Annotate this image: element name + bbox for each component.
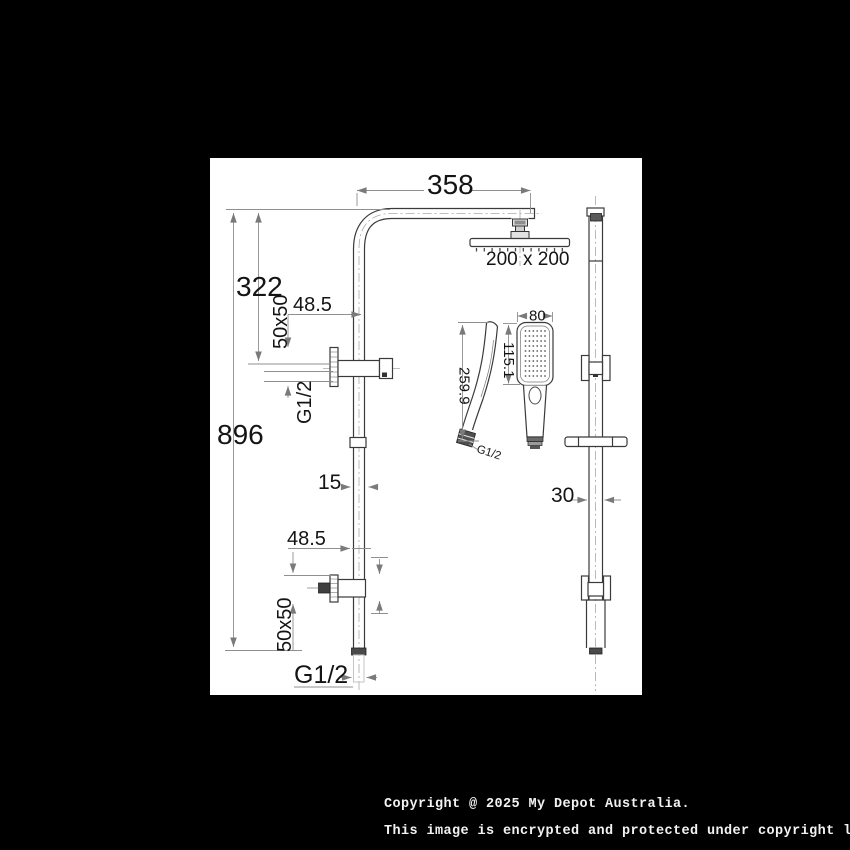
main-column-pipe [354, 209, 535, 649]
dim-head-size: 200 x 200 [486, 249, 569, 270]
dim-lower-offset: 48.5 [287, 528, 326, 550]
head-connector-base [511, 232, 529, 240]
pipe-union-nut [350, 438, 366, 448]
dim-hand-shower-length: 259.9 [456, 367, 473, 405]
copyright-protection-line: This image is encrypted and protected un… [384, 824, 850, 839]
dim-arm-length: 358 [427, 169, 474, 200]
slide-rail-view [565, 208, 627, 654]
lower-bracket-body [338, 580, 366, 598]
hand-shower-mode-button [529, 387, 541, 404]
technical-drawing-panel: 358 322 896 200 x 200 48.5 50x50 G1/2 15… [210, 158, 642, 695]
dim-upper-flange: 50x50 [270, 295, 292, 350]
head-plate [470, 239, 570, 247]
upper-wall-bracket [330, 348, 393, 387]
dim-upper-offset: 48.5 [293, 294, 332, 316]
dim-lower-flange: 50x50 [274, 598, 296, 653]
dim-upper-thread: G1/2 [294, 381, 316, 424]
diverter-knob [319, 583, 331, 593]
copyright-line: Copyright @ 2025 My Depot Australia. [384, 797, 690, 812]
upper-bracket-arm [338, 361, 380, 377]
hand-shower-front-view [517, 323, 553, 450]
dim-rail-width: 30 [551, 484, 574, 507]
lower-wall-bracket [307, 575, 366, 602]
rail-lower-slider [582, 576, 611, 600]
page-background: 358 322 896 200 x 200 48.5 50x50 G1/2 15… [0, 0, 850, 850]
rain-shower-head [470, 219, 570, 252]
dim-inlet-thread: G1/2 [294, 661, 348, 689]
dim-total-height: 896 [217, 419, 264, 450]
rail-soap-dish [565, 437, 627, 447]
dim-hand-shower-thread: G1/2 [475, 443, 502, 462]
hand-shower-face [517, 323, 553, 386]
dim-pipe-width: 15 [318, 471, 341, 494]
rail-upper-slider [582, 356, 611, 381]
shower-rail-technical-drawing: 358 322 896 200 x 200 48.5 50x50 G1/2 15… [210, 158, 642, 695]
dim-hand-shower-width: 80 [529, 308, 546, 325]
dim-hand-shower-face-height: 115.1 [500, 342, 517, 378]
